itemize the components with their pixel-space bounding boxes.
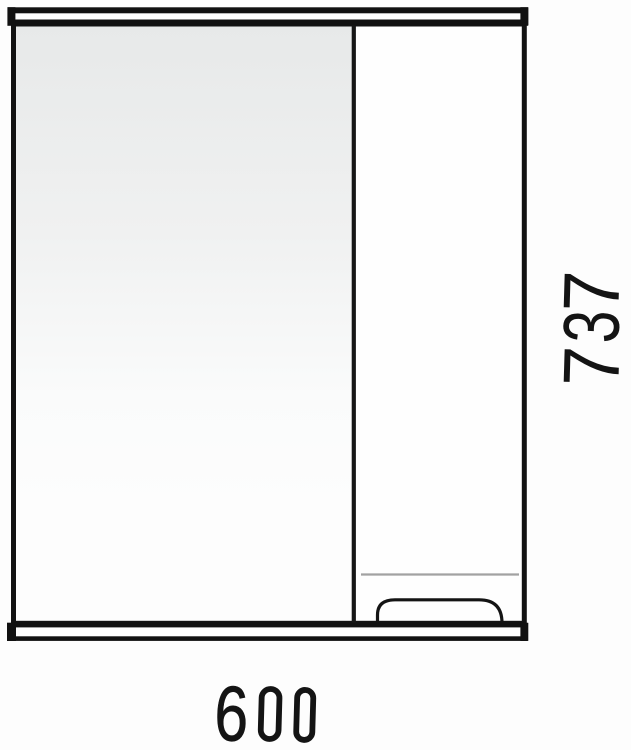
svg-text:7: 7 bbox=[548, 270, 631, 314]
svg-text:7: 7 bbox=[548, 345, 631, 387]
svg-text:6: 6 bbox=[213, 670, 249, 750]
svg-text:3: 3 bbox=[547, 309, 631, 344]
